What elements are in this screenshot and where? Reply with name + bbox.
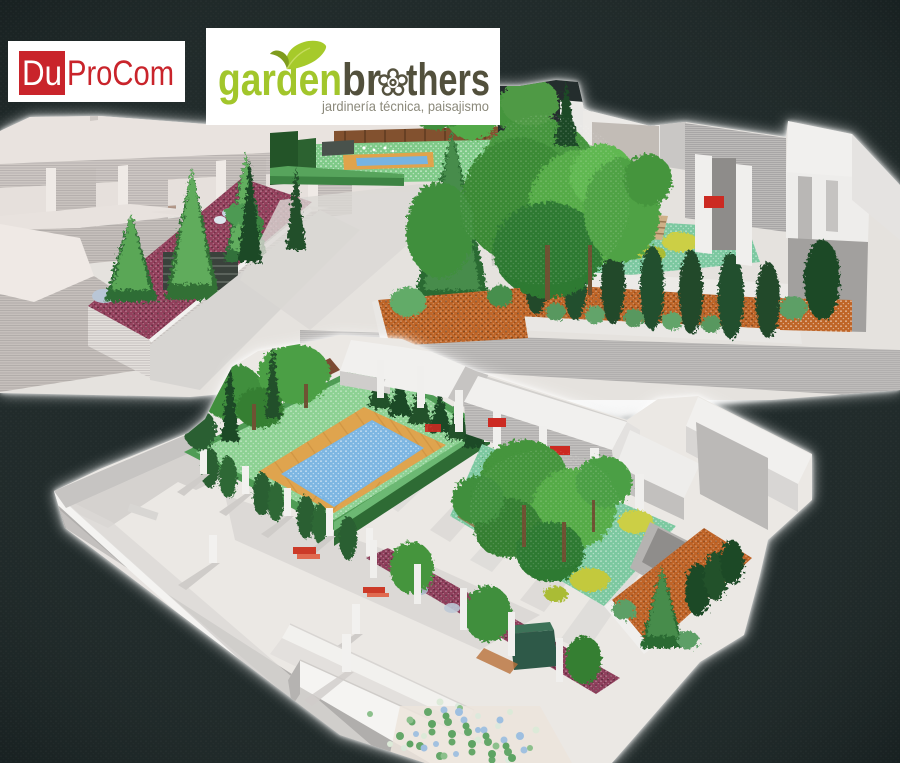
svg-text:jardinería técnica, paisajismo: jardinería técnica, paisajismo	[321, 98, 489, 114]
svg-text:Du: Du	[22, 54, 62, 93]
svg-text:ProCom: ProCom	[67, 54, 174, 93]
